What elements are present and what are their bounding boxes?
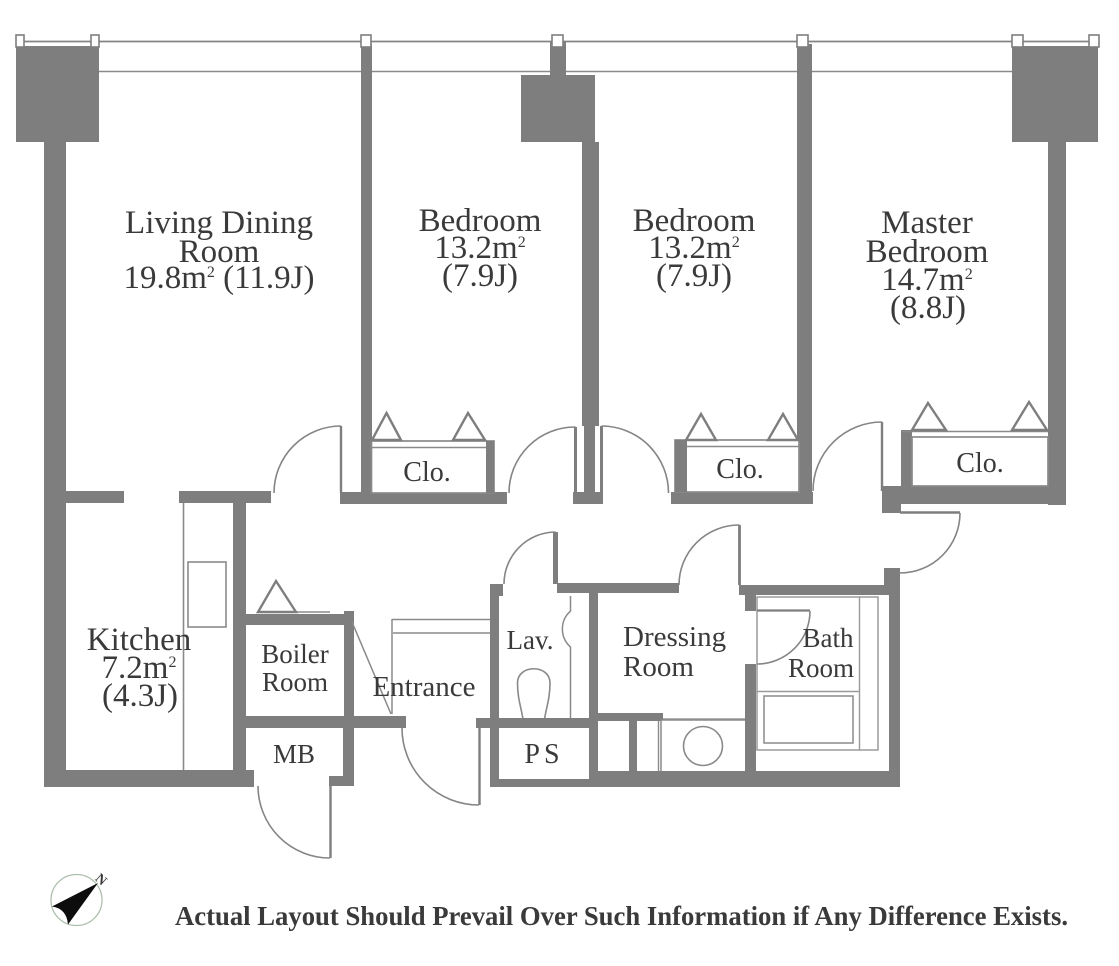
svg-text:Actual Layout Should Prevail O: Actual Layout Should Prevail Over Such I…	[175, 901, 1068, 931]
svg-text:Room: Room	[262, 667, 328, 697]
svg-text:Room: Room	[788, 653, 854, 683]
svg-text:MB: MB	[273, 739, 315, 769]
svg-text:Clo.: Clo.	[956, 448, 1003, 479]
svg-text:Boiler: Boiler	[261, 639, 329, 669]
svg-text:(7.9J): (7.9J)	[442, 258, 518, 294]
svg-text:(7.9J): (7.9J)	[656, 258, 732, 294]
svg-text:Dressing: Dressing	[623, 621, 726, 653]
svg-text:Bath: Bath	[803, 623, 854, 653]
svg-text:19.8m2 (11.9J): 19.8m2 (11.9J)	[123, 260, 314, 296]
svg-text:Clo.: Clo.	[716, 454, 763, 485]
svg-text:Lav.: Lav.	[507, 625, 554, 655]
svg-text:Clo.: Clo.	[403, 457, 450, 488]
svg-text:(4.3J): (4.3J)	[102, 678, 178, 714]
svg-text:PS: PS	[524, 739, 563, 770]
svg-text:Room: Room	[623, 651, 694, 683]
svg-text:Entrance: Entrance	[372, 671, 475, 703]
svg-text:(8.8J): (8.8J)	[890, 290, 966, 326]
